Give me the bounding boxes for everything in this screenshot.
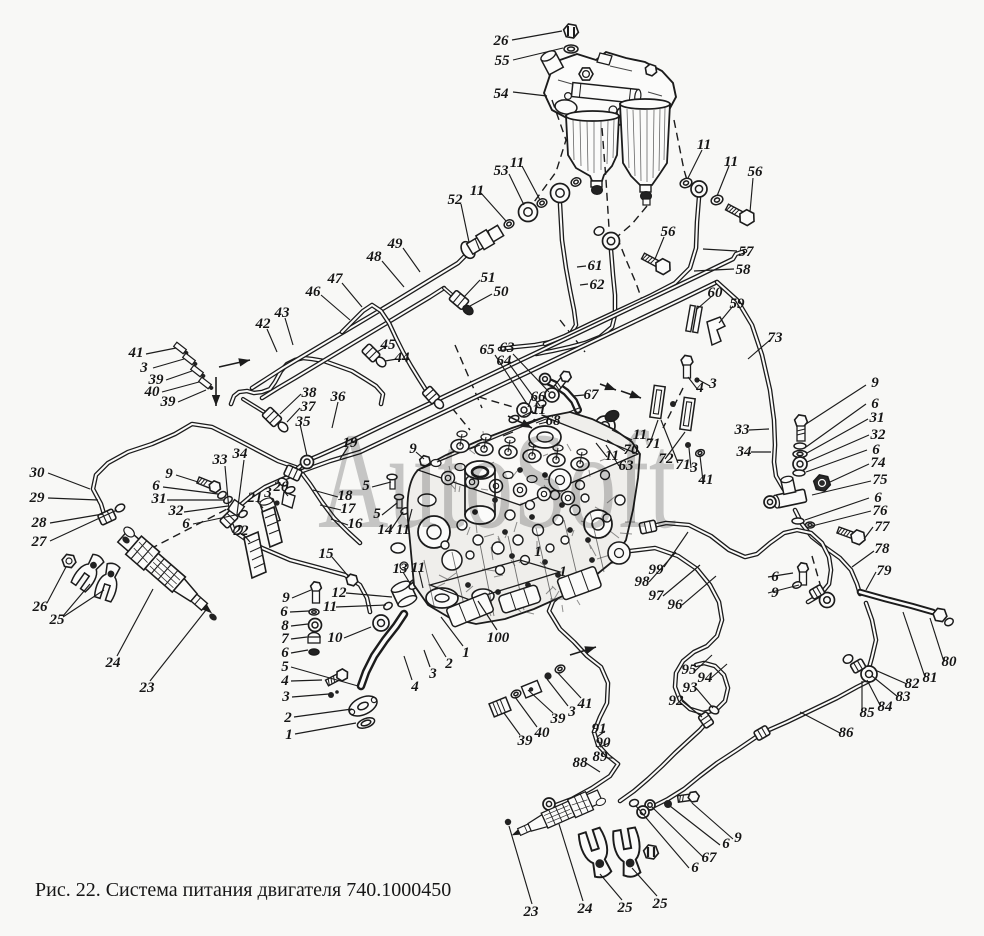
svg-text:43: 43 <box>274 305 291 321</box>
svg-text:71: 71 <box>676 457 691 473</box>
svg-text:37: 37 <box>300 399 317 415</box>
svg-text:84: 84 <box>878 699 894 715</box>
svg-text:85: 85 <box>860 705 876 721</box>
svg-text:31: 31 <box>869 410 885 426</box>
svg-text:41: 41 <box>128 345 144 361</box>
svg-text:42: 42 <box>255 316 272 332</box>
svg-text:13: 13 <box>393 561 409 577</box>
svg-text:26: 26 <box>32 599 49 615</box>
svg-text:67: 67 <box>702 850 718 866</box>
svg-text:3: 3 <box>139 360 148 376</box>
svg-text:49: 49 <box>387 236 404 252</box>
svg-text:60: 60 <box>708 285 724 301</box>
svg-text:48: 48 <box>366 249 383 265</box>
svg-text:52: 52 <box>448 192 464 208</box>
svg-text:39: 39 <box>550 711 567 727</box>
svg-text:10: 10 <box>328 630 344 646</box>
svg-text:4: 4 <box>410 679 419 695</box>
svg-text:89: 89 <box>593 749 609 765</box>
svg-text:31: 31 <box>151 491 167 507</box>
svg-text:80: 80 <box>942 654 958 670</box>
svg-text:1: 1 <box>285 727 293 743</box>
svg-text:4: 4 <box>280 673 289 689</box>
svg-text:56: 56 <box>661 224 677 240</box>
svg-text:61: 61 <box>588 258 603 274</box>
svg-text:56: 56 <box>748 164 764 180</box>
svg-text:86: 86 <box>839 725 855 741</box>
svg-text:29: 29 <box>29 490 46 506</box>
svg-text:54: 54 <box>494 86 510 102</box>
svg-text:20: 20 <box>273 479 290 495</box>
svg-text:33: 33 <box>212 452 229 468</box>
svg-text:41: 41 <box>577 696 593 712</box>
svg-text:23: 23 <box>139 680 156 696</box>
svg-text:3: 3 <box>708 376 717 392</box>
svg-text:92: 92 <box>669 693 685 709</box>
svg-text:3: 3 <box>689 460 698 476</box>
svg-text:50: 50 <box>494 284 510 300</box>
svg-text:81: 81 <box>923 670 938 686</box>
svg-text:59: 59 <box>730 296 746 312</box>
svg-text:34: 34 <box>232 446 249 462</box>
svg-text:78: 78 <box>875 541 891 557</box>
svg-text:53: 53 <box>494 163 510 179</box>
svg-text:36: 36 <box>330 389 347 405</box>
svg-text:35: 35 <box>295 414 312 430</box>
svg-text:9: 9 <box>771 585 779 601</box>
svg-text:77: 77 <box>875 519 891 535</box>
svg-text:100: 100 <box>487 630 510 646</box>
svg-text:67: 67 <box>584 387 600 403</box>
svg-text:25: 25 <box>617 900 634 916</box>
svg-text:65: 65 <box>480 342 496 358</box>
svg-text:AutoSoft: AutoSoft <box>318 404 676 557</box>
svg-text:22: 22 <box>233 523 250 539</box>
svg-text:11: 11 <box>724 154 738 170</box>
svg-text:41: 41 <box>698 472 714 488</box>
svg-text:73: 73 <box>768 330 784 346</box>
svg-text:33: 33 <box>734 422 751 438</box>
svg-text:79: 79 <box>877 563 893 579</box>
svg-text:26: 26 <box>493 33 510 49</box>
svg-text:76: 76 <box>873 503 889 519</box>
svg-text:3: 3 <box>428 666 437 682</box>
svg-text:21: 21 <box>247 490 263 506</box>
svg-text:2: 2 <box>444 656 453 672</box>
svg-text:46: 46 <box>305 284 322 300</box>
svg-text:2: 2 <box>283 710 292 726</box>
svg-text:39: 39 <box>160 394 177 410</box>
svg-text:28: 28 <box>31 515 48 531</box>
svg-text:23: 23 <box>523 904 540 920</box>
svg-text:88: 88 <box>573 755 589 771</box>
svg-text:40: 40 <box>534 725 551 741</box>
svg-text:1: 1 <box>462 645 470 661</box>
svg-text:4: 4 <box>695 380 704 396</box>
svg-text:6: 6 <box>182 516 190 532</box>
svg-text:30: 30 <box>29 465 46 481</box>
svg-text:34: 34 <box>736 444 753 460</box>
svg-text:99: 99 <box>649 562 665 578</box>
svg-text:24: 24 <box>105 655 122 671</box>
svg-text:6: 6 <box>691 860 699 876</box>
svg-text:6: 6 <box>722 836 730 852</box>
svg-text:9: 9 <box>165 466 173 482</box>
svg-text:3: 3 <box>281 689 290 705</box>
svg-text:9: 9 <box>734 830 742 846</box>
svg-text:25: 25 <box>49 612 66 628</box>
svg-text:57: 57 <box>739 244 755 260</box>
svg-text:11: 11 <box>697 137 711 153</box>
svg-text:58: 58 <box>736 262 752 278</box>
svg-text:75: 75 <box>873 472 889 488</box>
svg-text:24: 24 <box>577 901 594 917</box>
svg-text:97: 97 <box>649 588 665 604</box>
svg-text:27: 27 <box>31 534 48 550</box>
svg-text:64: 64 <box>497 353 513 369</box>
svg-text:74: 74 <box>871 455 887 471</box>
svg-text:11: 11 <box>411 560 425 576</box>
svg-text:93: 93 <box>683 680 699 696</box>
svg-text:25: 25 <box>652 896 669 912</box>
svg-text:3: 3 <box>263 485 272 501</box>
svg-text:96: 96 <box>668 597 684 613</box>
svg-text:1: 1 <box>559 564 567 580</box>
svg-text:62: 62 <box>590 277 606 293</box>
svg-text:40: 40 <box>144 384 161 400</box>
svg-text:39: 39 <box>517 733 534 749</box>
svg-text:6: 6 <box>771 569 779 585</box>
svg-text:94: 94 <box>698 670 714 686</box>
svg-text:95: 95 <box>682 662 698 678</box>
svg-text:Рис. 22. Система питания двига: Рис. 22. Система питания двигателя 740.1… <box>35 879 451 901</box>
svg-text:82: 82 <box>905 676 921 692</box>
svg-text:11: 11 <box>470 183 484 199</box>
svg-text:11: 11 <box>323 599 337 615</box>
svg-text:9: 9 <box>871 375 879 391</box>
svg-text:55: 55 <box>495 53 511 69</box>
svg-text:47: 47 <box>327 271 344 287</box>
svg-text:32: 32 <box>870 427 887 443</box>
svg-text:3: 3 <box>567 704 576 720</box>
svg-text:44: 44 <box>394 350 411 366</box>
svg-text:11: 11 <box>510 155 524 171</box>
